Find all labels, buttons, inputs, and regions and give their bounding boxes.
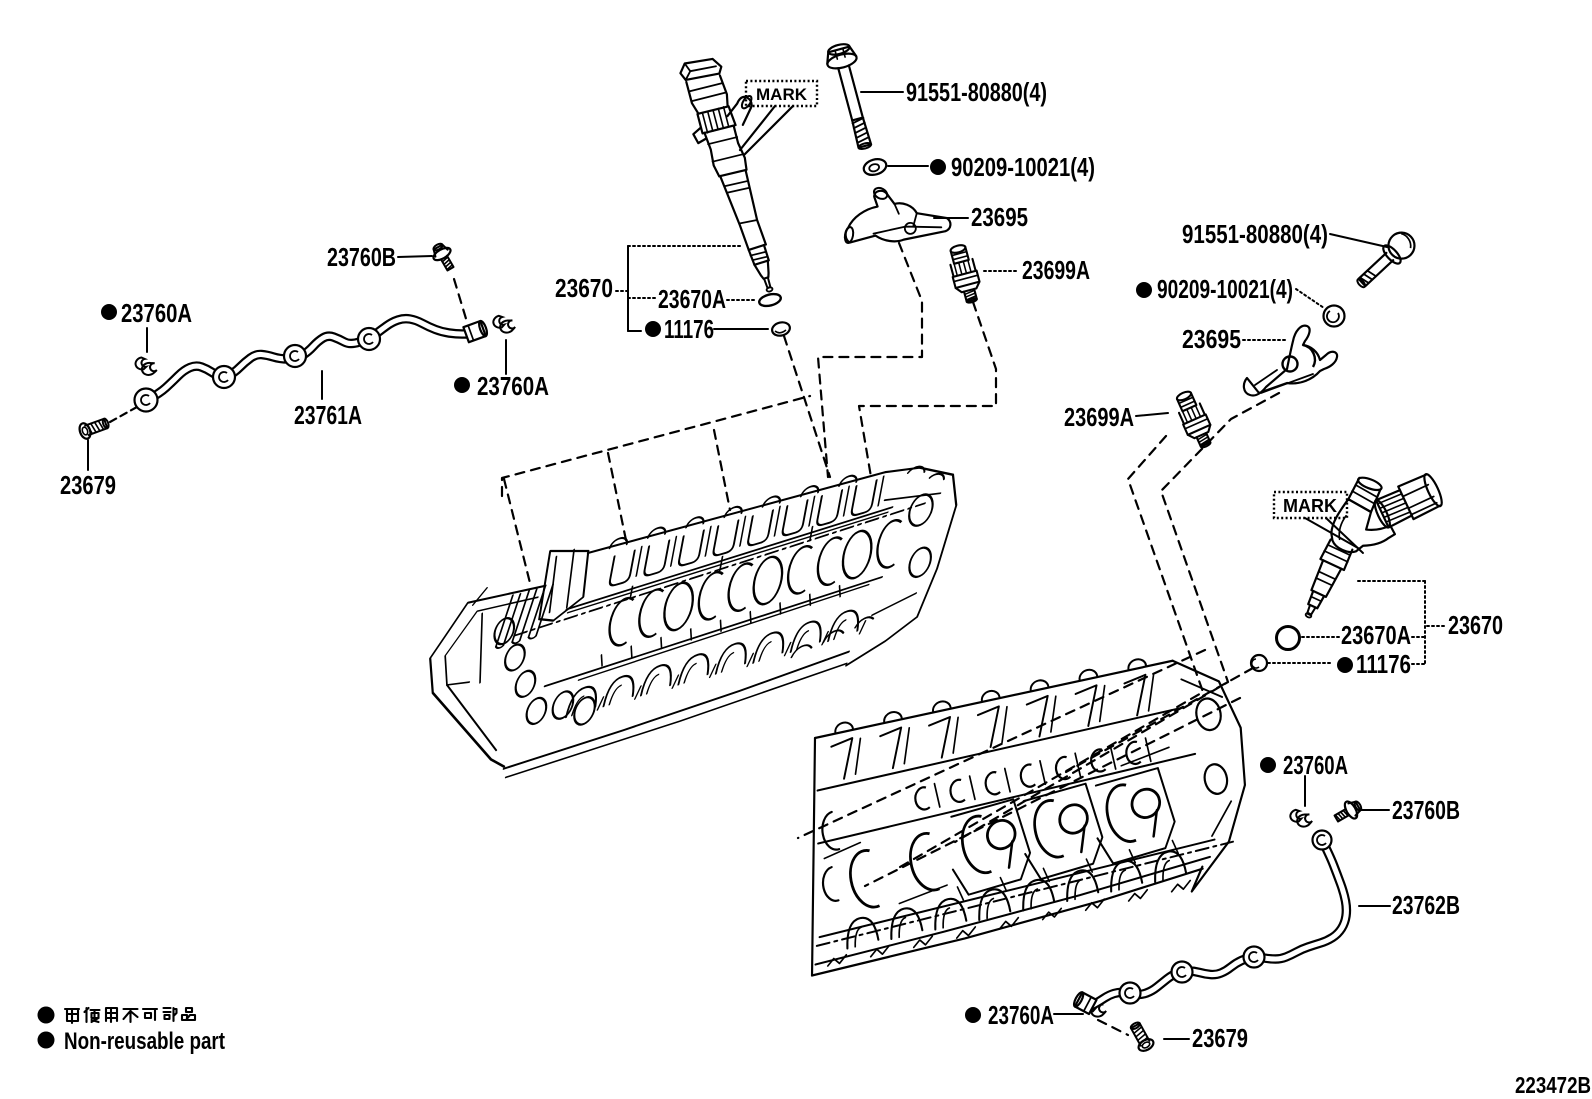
svg-text:23760A: 23760A — [121, 298, 192, 328]
svg-text:23670A: 23670A — [658, 284, 726, 314]
svg-text:11176: 11176 — [1356, 649, 1411, 679]
svg-text:23760B: 23760B — [327, 242, 396, 272]
svg-text:90209-10021(4): 90209-10021(4) — [951, 152, 1095, 182]
svg-text:23670: 23670 — [555, 273, 613, 303]
svg-text:23760A: 23760A — [1283, 750, 1348, 780]
svg-text:23699A: 23699A — [1022, 255, 1090, 285]
svg-text:MARK: MARK — [756, 85, 808, 104]
svg-text:23679: 23679 — [60, 470, 116, 500]
svg-text:Non-reusable part: Non-reusable part — [64, 1028, 225, 1055]
svg-text:23760B: 23760B — [1392, 795, 1460, 825]
svg-text:23695: 23695 — [1182, 324, 1241, 354]
svg-text:23699A: 23699A — [1064, 402, 1134, 432]
svg-text:11176: 11176 — [664, 314, 714, 344]
svg-text:23761A: 23761A — [294, 400, 362, 430]
svg-text:91551-80880(4): 91551-80880(4) — [906, 77, 1047, 107]
svg-text:23762B: 23762B — [1392, 890, 1460, 920]
svg-text:MARK: MARK — [1283, 496, 1337, 516]
svg-text:90209-10021(4): 90209-10021(4) — [1157, 274, 1293, 304]
svg-text:223472B: 223472B — [1515, 1072, 1591, 1098]
svg-text:23760A: 23760A — [988, 1000, 1054, 1030]
svg-text:23695: 23695 — [971, 202, 1028, 232]
svg-text:23760A: 23760A — [477, 371, 549, 401]
svg-text:91551-80880(4): 91551-80880(4) — [1182, 219, 1328, 249]
svg-text:23670: 23670 — [1448, 610, 1503, 640]
svg-text:23679: 23679 — [1192, 1023, 1248, 1053]
svg-text:23670A: 23670A — [1341, 620, 1411, 650]
